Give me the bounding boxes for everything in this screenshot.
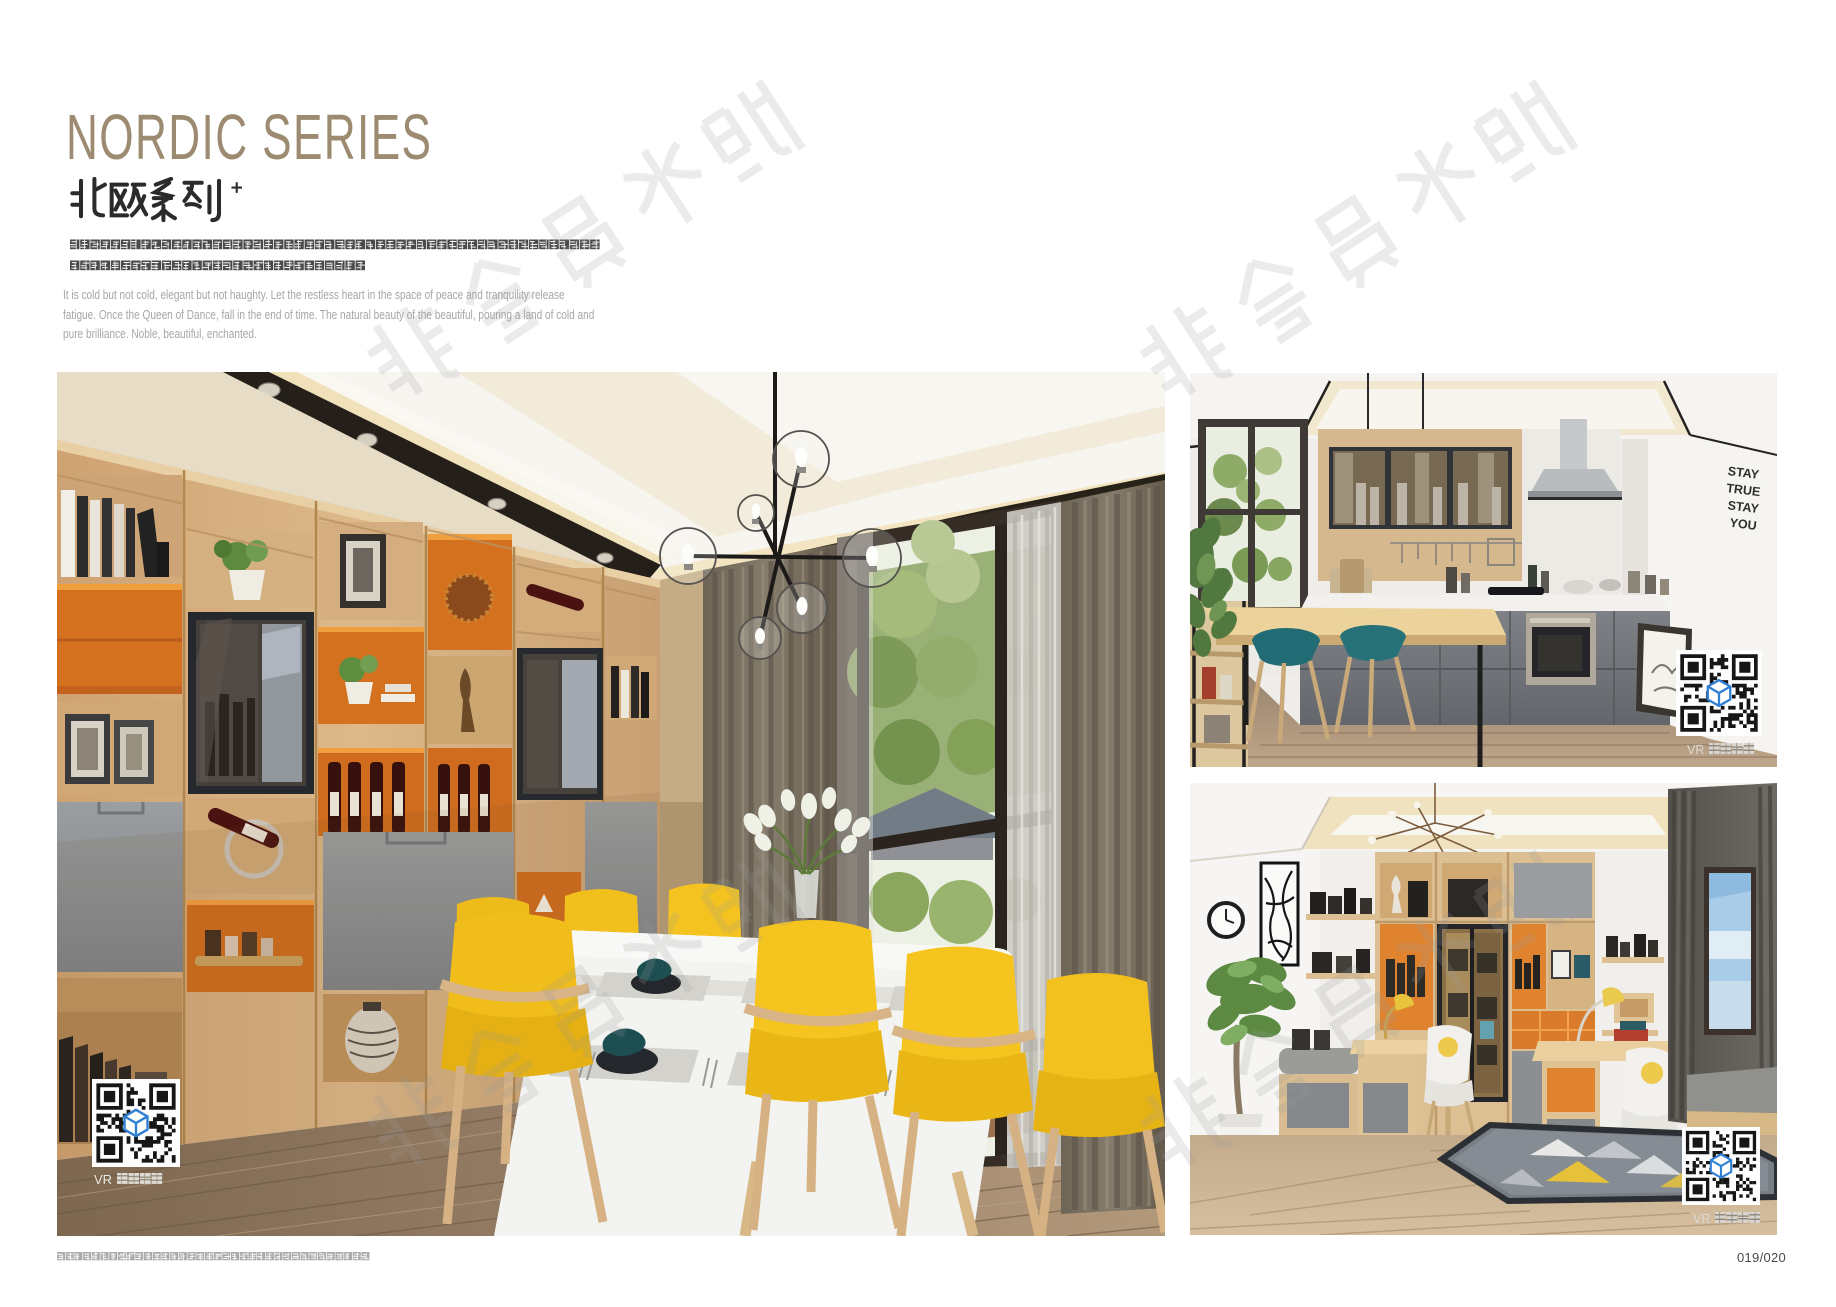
- svg-text:VR: VR: [94, 1172, 112, 1187]
- svg-text:VR: VR: [1687, 743, 1704, 757]
- svg-text:VR: VR: [1693, 1212, 1710, 1226]
